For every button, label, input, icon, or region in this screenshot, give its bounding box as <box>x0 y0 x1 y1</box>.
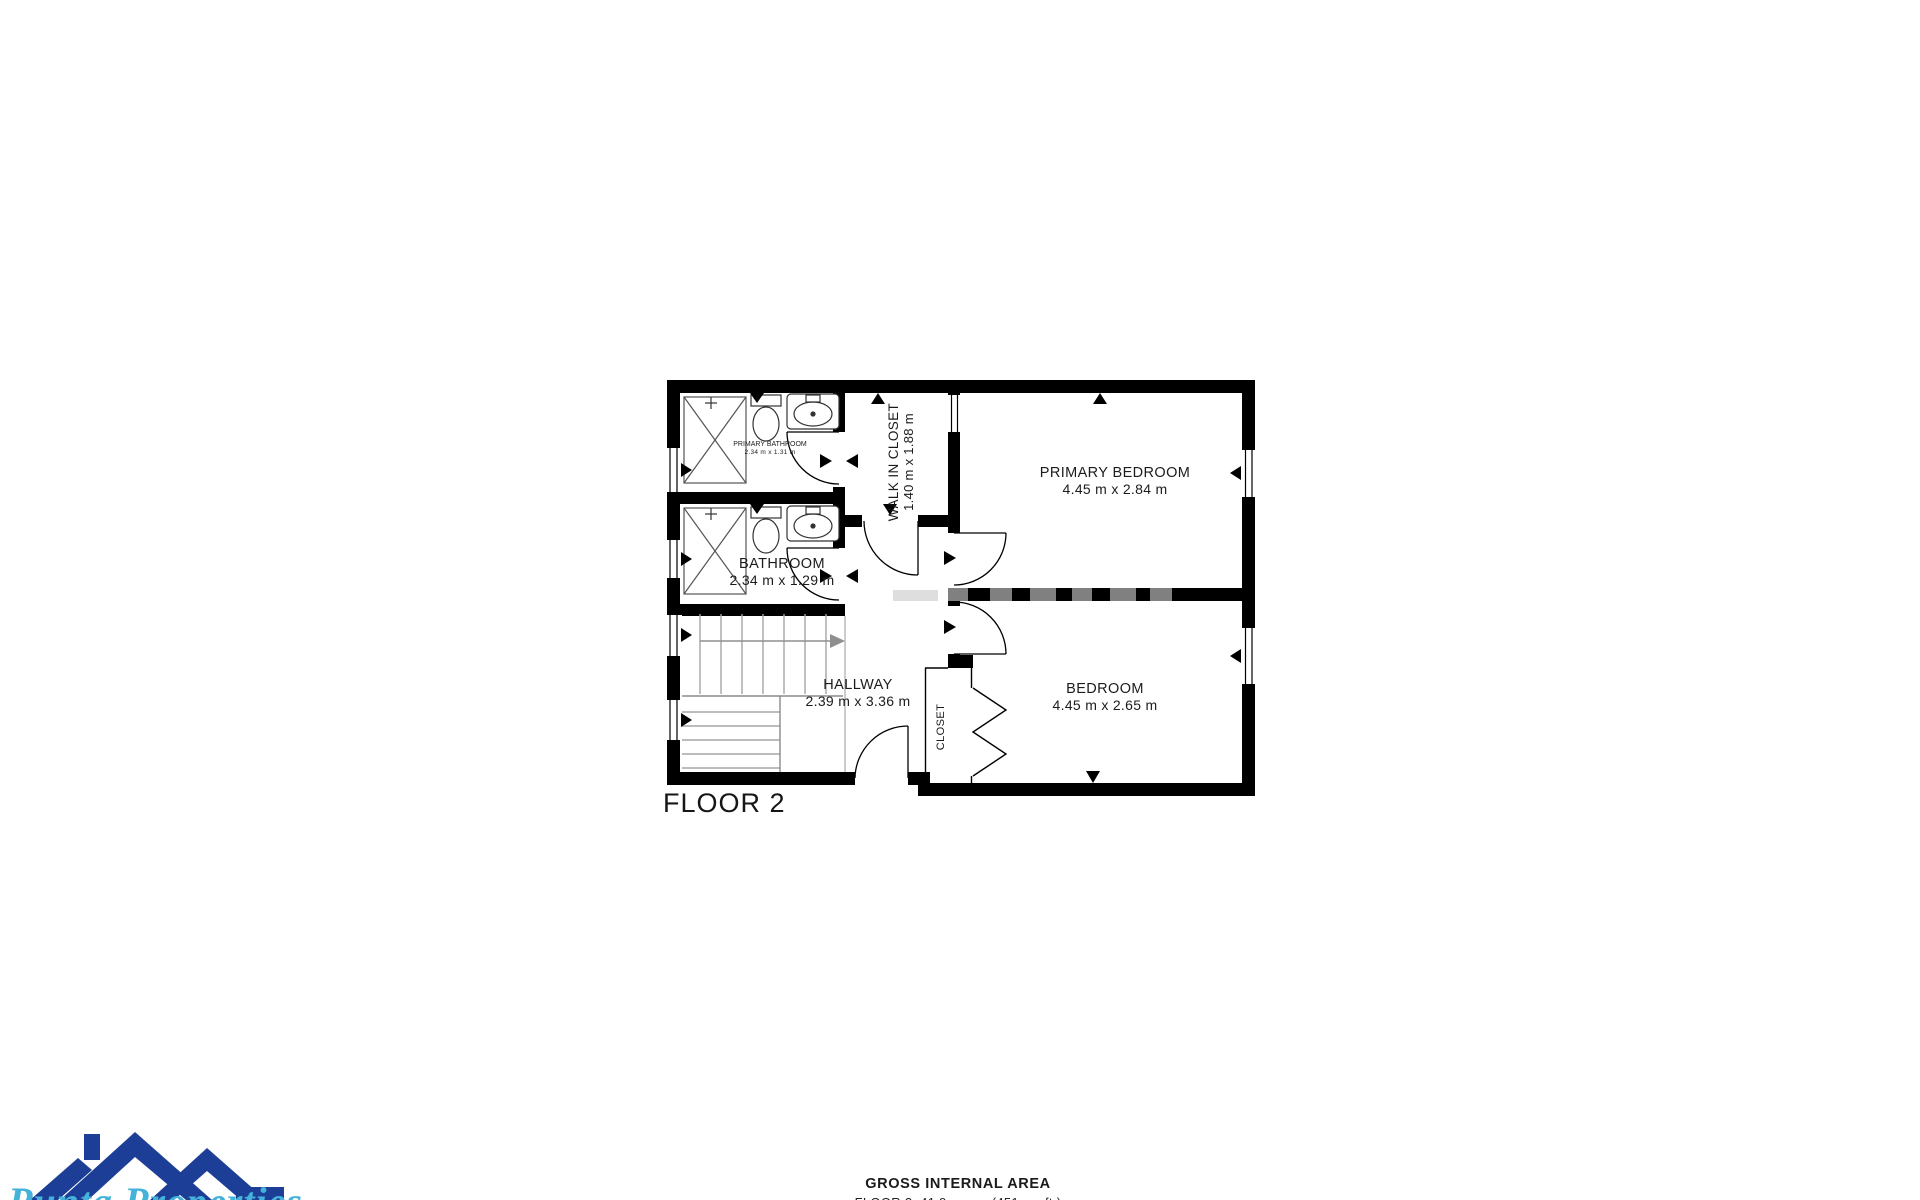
gross-internal-area-title: GROSS INTERNAL AREA <box>865 1176 1050 1192</box>
window-right-2 <box>1240 628 1257 684</box>
door-bedroom <box>954 602 1006 654</box>
door-primary-bathroom <box>787 432 839 484</box>
room-label-closet: CLOSET <box>935 704 947 750</box>
window-left-4 <box>665 700 682 740</box>
floorplan-page: PRIMARY BATHROOM 2.34 m x 1.31 m BATHROO… <box>0 0 1920 1200</box>
wall-top <box>667 380 1255 393</box>
gross-internal-area-detail: FLOOR 2: 41.9 sq. m. (451 sq. ft.) <box>855 1195 1062 1200</box>
window-left-2 <box>665 540 682 578</box>
window-left-1 <box>665 448 682 492</box>
window-left-3 <box>665 615 682 656</box>
wall-wic-bottom-b <box>918 515 960 527</box>
watermark-smudge <box>893 590 938 601</box>
room-dims: 2.34 m x 1.31 m <box>732 449 808 457</box>
floor-title: FLOOR 2 <box>663 788 786 819</box>
wall-bottom-left-b <box>908 772 918 785</box>
room-label-primary-bathroom: PRIMARY BATHROOM 2.34 m x 1.31 m <box>732 441 808 457</box>
wall-bottom-left-a <box>667 772 855 785</box>
room-name: HALLWAY <box>806 677 911 693</box>
room-name: PRIMARY BEDROOM <box>1040 465 1191 481</box>
toilet-primary-bathroom <box>751 395 781 441</box>
room-dims: 2.34 m x 1.29 m <box>730 572 835 588</box>
room-label-walk-in-closet: WALK IN CLOSET 1.40 m x 1.88 m <box>886 403 916 521</box>
window-right-1 <box>1240 450 1257 497</box>
door-hallway-entry <box>855 726 908 778</box>
room-dims: 2.39 m x 3.36 m <box>806 693 911 709</box>
shower-primary-bathroom <box>684 397 746 483</box>
room-name: BEDROOM <box>1053 681 1158 697</box>
room-label-primary-bedroom: PRIMARY BEDROOM 4.45 m x 2.84 m <box>1040 465 1191 497</box>
wall-v2b <box>948 432 960 527</box>
floorplan-drawing <box>0 0 1920 1200</box>
company-name-script: Punta Properties <box>8 1178 303 1200</box>
room-label-hallway: HALLWAY 2.39 m x 3.36 m <box>806 677 911 709</box>
stair-direction-arrow <box>830 634 845 648</box>
room-label-bathroom: BATHROOM 2.34 m x 1.29 m <box>730 556 835 588</box>
window-wic-divider <box>946 395 962 432</box>
room-name: PRIMARY BATHROOM <box>732 441 808 449</box>
logo-chimney <box>84 1134 100 1160</box>
wall-closet-top <box>948 655 973 668</box>
room-name: WALK IN CLOSET <box>886 403 901 521</box>
wall-v2a <box>948 380 960 395</box>
wall-bathroom-hallway <box>667 604 845 616</box>
room-name: BATHROOM <box>730 556 835 572</box>
room-label-bedroom: BEDROOM 4.45 m x 2.65 m <box>1053 681 1158 713</box>
room-dims: 1.40 m x 1.88 m <box>901 403 916 521</box>
sink-primary-bathroom <box>787 394 839 429</box>
room-dims: 4.45 m x 2.84 m <box>1040 481 1191 497</box>
room-dims: 4.45 m x 2.65 m <box>1053 697 1158 713</box>
door-walk-in-closet <box>864 521 918 575</box>
wall-bathrooms-divider <box>667 492 845 504</box>
toilet-bathroom <box>751 507 781 553</box>
door-primary-bedroom <box>954 533 1006 585</box>
wall-bottom-right <box>918 783 1255 796</box>
sink-bathroom <box>787 506 839 541</box>
bifold-doors <box>973 688 1006 776</box>
room-name: CLOSET <box>935 704 947 750</box>
wall-v3a <box>948 527 960 533</box>
